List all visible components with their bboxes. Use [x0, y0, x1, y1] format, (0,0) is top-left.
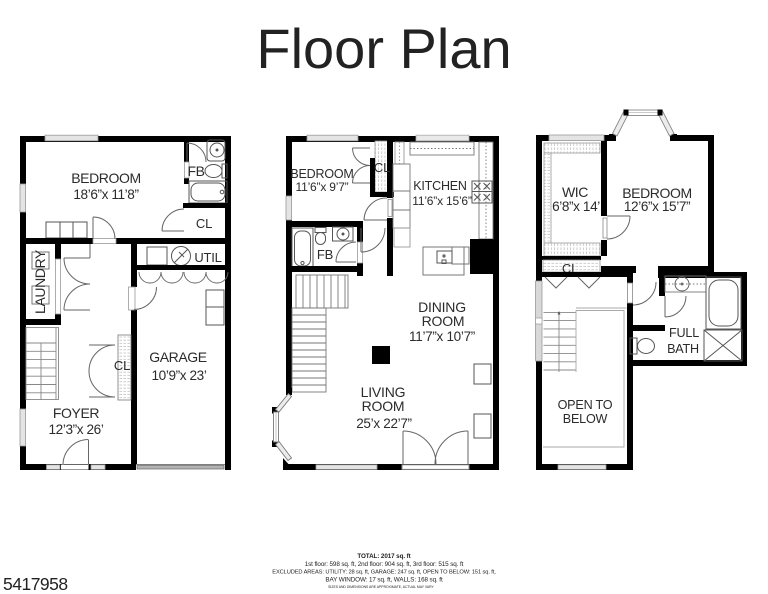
svg-text:12’3”x 26’: 12’3”x 26’ [49, 422, 104, 437]
svg-text:11’7”x 10’7”: 11’7”x 10’7” [409, 329, 475, 344]
svg-text:11’6”x 15’6”: 11’6”x 15’6” [412, 194, 472, 208]
svg-text:10’9”x 23’: 10’9”x 23’ [152, 368, 207, 383]
svg-text:18’6”x 11’8”: 18’6”x 11’8” [73, 187, 139, 202]
svg-text:WIC: WIC [562, 184, 588, 200]
svg-text:GARAGE: GARAGE [149, 349, 207, 365]
svg-text:BEDROOM: BEDROOM [290, 167, 353, 181]
svg-text:BAY WINDOW: 17 sq. ft, WALLS:: BAY WINDOW: 17 sq. ft, WALLS: 168 sq. ft [325, 577, 443, 584]
svg-text:FOYER: FOYER [53, 405, 100, 421]
svg-text:11’6”x 9’7”: 11’6”x 9’7” [296, 180, 349, 194]
svg-text:CL: CL [374, 160, 390, 175]
svg-text:FB: FB [187, 163, 204, 179]
svg-text:FULL: FULL [669, 326, 699, 340]
svg-text:KITCHEN: KITCHEN [413, 179, 467, 193]
svg-text:OPEN TO: OPEN TO [558, 398, 613, 412]
svg-text:12’6”x 15’7”: 12’6”x 15’7” [624, 199, 691, 214]
svg-text:BATH: BATH [667, 342, 699, 356]
svg-text:CL: CL [114, 358, 130, 373]
svg-text:EXCLUDED AREAS: UTILITY: 28 sq: EXCLUDED AREAS: UTILITY: 28 sq. ft, GARA… [272, 570, 496, 576]
svg-text:6’8”x 14’: 6’8”x 14’ [552, 199, 600, 214]
svg-text:ROOM: ROOM [362, 398, 405, 414]
svg-text:1st floor: 598 sq. ft, 2nd flo: 1st floor: 598 sq. ft, 2nd floor: 904 sq… [305, 561, 464, 568]
svg-text:FB: FB [317, 247, 333, 262]
svg-text:25’x 22’7”: 25’x 22’7” [356, 416, 412, 431]
svg-text:LAUNDRY: LAUNDRY [32, 249, 48, 314]
svg-text:ROOM: ROOM [422, 313, 465, 329]
svg-text:BELOW: BELOW [563, 412, 608, 426]
svg-text:BEDROOM: BEDROOM [71, 170, 141, 186]
svg-text:Floor Plan: Floor Plan [256, 17, 511, 80]
svg-text:TOTAL: 2017 sq. ft: TOTAL: 2017 sq. ft [357, 553, 411, 560]
svg-text:UTIL: UTIL [194, 250, 221, 265]
svg-text:SIZES AND DIMENSIONS ARE APPRO: SIZES AND DIMENSIONS ARE APPROXIMATE, AC… [328, 585, 434, 589]
svg-text:5417958: 5417958 [3, 574, 68, 594]
svg-text:CL: CL [196, 216, 212, 231]
